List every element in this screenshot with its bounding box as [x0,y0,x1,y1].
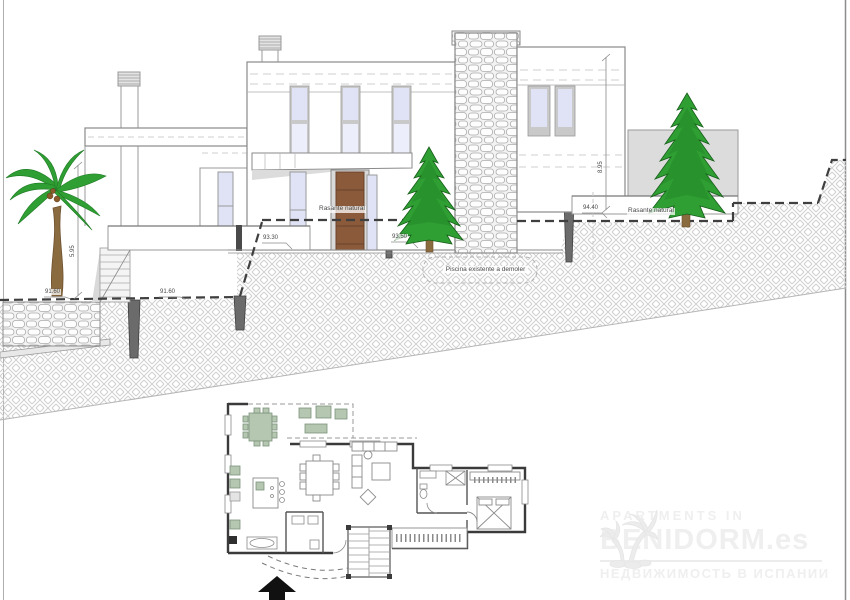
floor-plan-view [225,403,528,600]
ground-window-b [367,175,377,250]
elevation-view [0,31,846,420]
terrace-parapet [108,225,310,251]
utility-room [247,516,319,549]
driveway-path [262,556,348,579]
upper-windows [290,86,411,156]
kitchen [229,466,285,544]
living-furniture [352,442,397,505]
palm-logo-icon [600,508,658,570]
ground-label-left: Rasante natural [318,206,366,213]
entry-door-swing [333,540,346,553]
level-label-94-40: 94.40 [582,205,599,211]
staircase [346,525,392,579]
level-label-91-60-b: 91.60 [159,289,176,295]
dimension-label-left: 5.95 [70,244,76,258]
bathroom [420,471,465,513]
level-label-93-50: 93.50 [391,234,408,240]
level-label-93-30: 93.30 [262,235,279,241]
north-arrow [258,576,296,600]
level-label-91-60-a: 91.60 [44,289,61,295]
dining-table [300,455,339,501]
rubble-wall [3,302,100,346]
bedroom [467,472,520,529]
terrace-furniture [243,406,347,446]
right-volume [517,47,625,212]
south-terrace [392,528,467,548]
palm-tree [6,150,106,296]
dimension-label-right: 8.95 [598,160,604,174]
pool-demolition-note: Piscina existente a demoler [412,267,559,274]
stone-tower [452,31,520,253]
watermark-logo: APARTMENTS IN BENIDORM.es НЕДВИЖИМОСТЬ В… [600,508,850,581]
drawing-sheet: Rasante natural Rasante natural 93.30 93… [0,0,850,600]
gate-post [236,225,242,251]
ground-label-right: Rasante natural [627,208,675,215]
garden-stair [92,248,130,302]
